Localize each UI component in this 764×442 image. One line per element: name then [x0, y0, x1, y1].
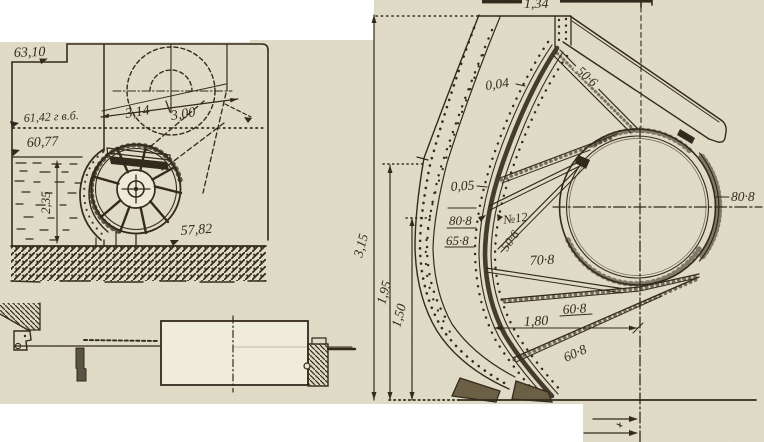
svg-text:80·8: 80·8 [731, 189, 755, 204]
svg-text:70·8: 70·8 [529, 253, 554, 269]
svg-text:57,82: 57,82 [180, 222, 212, 239]
svg-text:1,34: 1,34 [524, 0, 549, 12]
svg-text:1,80: 1,80 [523, 314, 548, 330]
svg-text:61,42 г в.б.: 61,42 г в.б. [23, 108, 79, 125]
svg-text:60,77: 60,77 [26, 134, 59, 151]
svg-text:65·8: 65·8 [446, 233, 469, 248]
svg-text:0,05: 0,05 [450, 177, 475, 194]
svg-text:2,35: 2,35 [38, 191, 53, 214]
svg-text:80·8: 80·8 [449, 213, 472, 228]
